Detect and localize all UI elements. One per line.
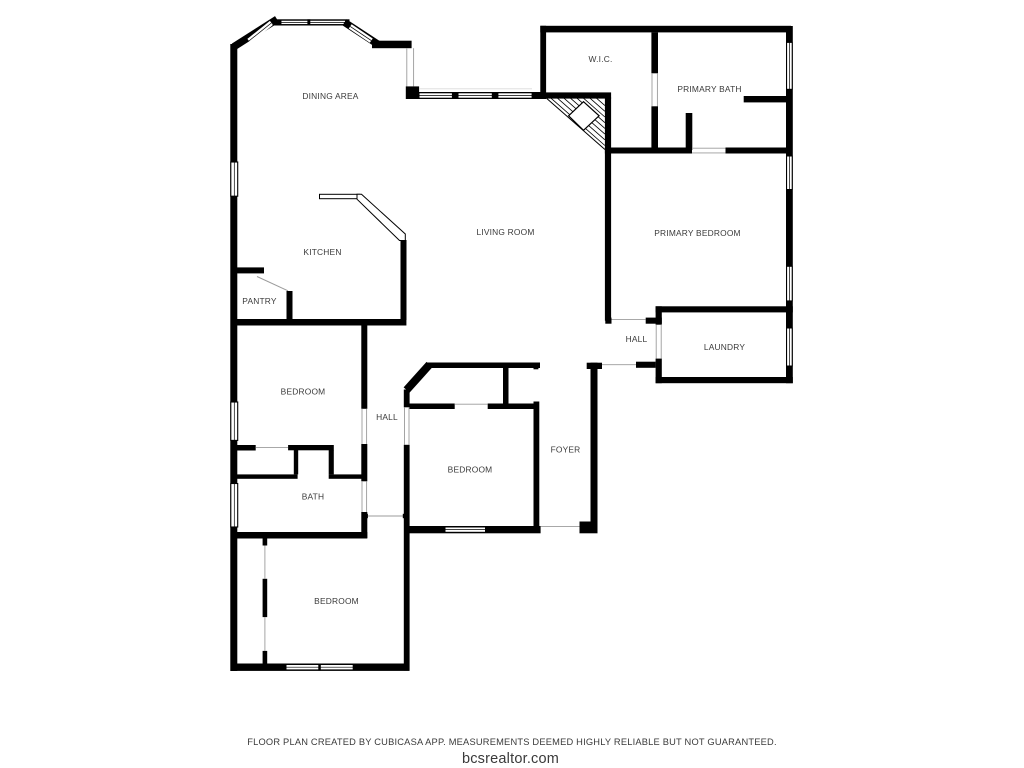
svg-text:HALL: HALL <box>376 412 398 422</box>
svg-text:LAUNDRY: LAUNDRY <box>704 342 745 352</box>
svg-text:DINING AREA: DINING AREA <box>302 91 358 101</box>
svg-text:PRIMARY BATH: PRIMARY BATH <box>677 84 741 94</box>
svg-text:PANTRY: PANTRY <box>242 296 277 306</box>
svg-text:HALL: HALL <box>626 334 648 344</box>
svg-text:W.I.C.: W.I.C. <box>589 54 613 64</box>
svg-text:FOYER: FOYER <box>551 444 581 454</box>
svg-text:BEDROOM: BEDROOM <box>281 386 326 396</box>
svg-text:BEDROOM: BEDROOM <box>448 464 493 474</box>
svg-text:KITCHEN: KITCHEN <box>303 247 341 257</box>
svg-text:PRIMARY BEDROOM: PRIMARY BEDROOM <box>654 228 740 238</box>
svg-text:BATH: BATH <box>302 491 325 501</box>
svg-text:FLOOR PLAN CREATED BY CUBICASA: FLOOR PLAN CREATED BY CUBICASA APP. MEAS… <box>247 737 777 747</box>
svg-text:BEDROOM: BEDROOM <box>314 596 359 606</box>
svg-text:LIVING ROOM: LIVING ROOM <box>476 227 534 237</box>
svg-text:bcsrealtor.com: bcsrealtor.com <box>462 751 559 767</box>
